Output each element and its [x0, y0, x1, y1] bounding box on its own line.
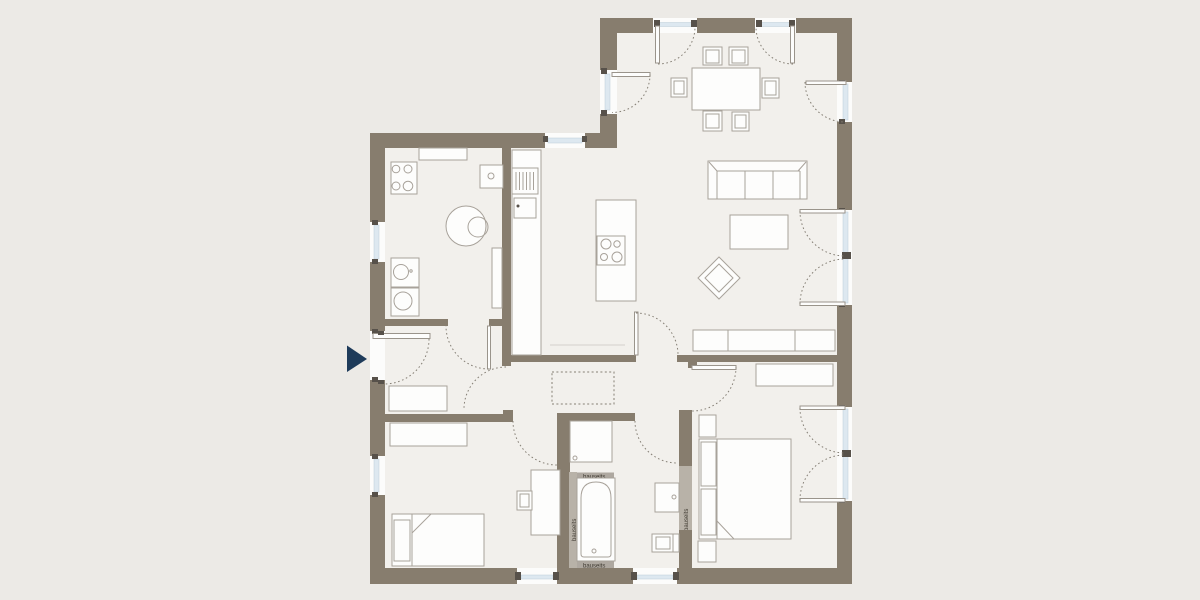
svg-text:bauseits: bauseits [583, 564, 605, 570]
svg-text:bauseits: bauseits [684, 509, 690, 531]
